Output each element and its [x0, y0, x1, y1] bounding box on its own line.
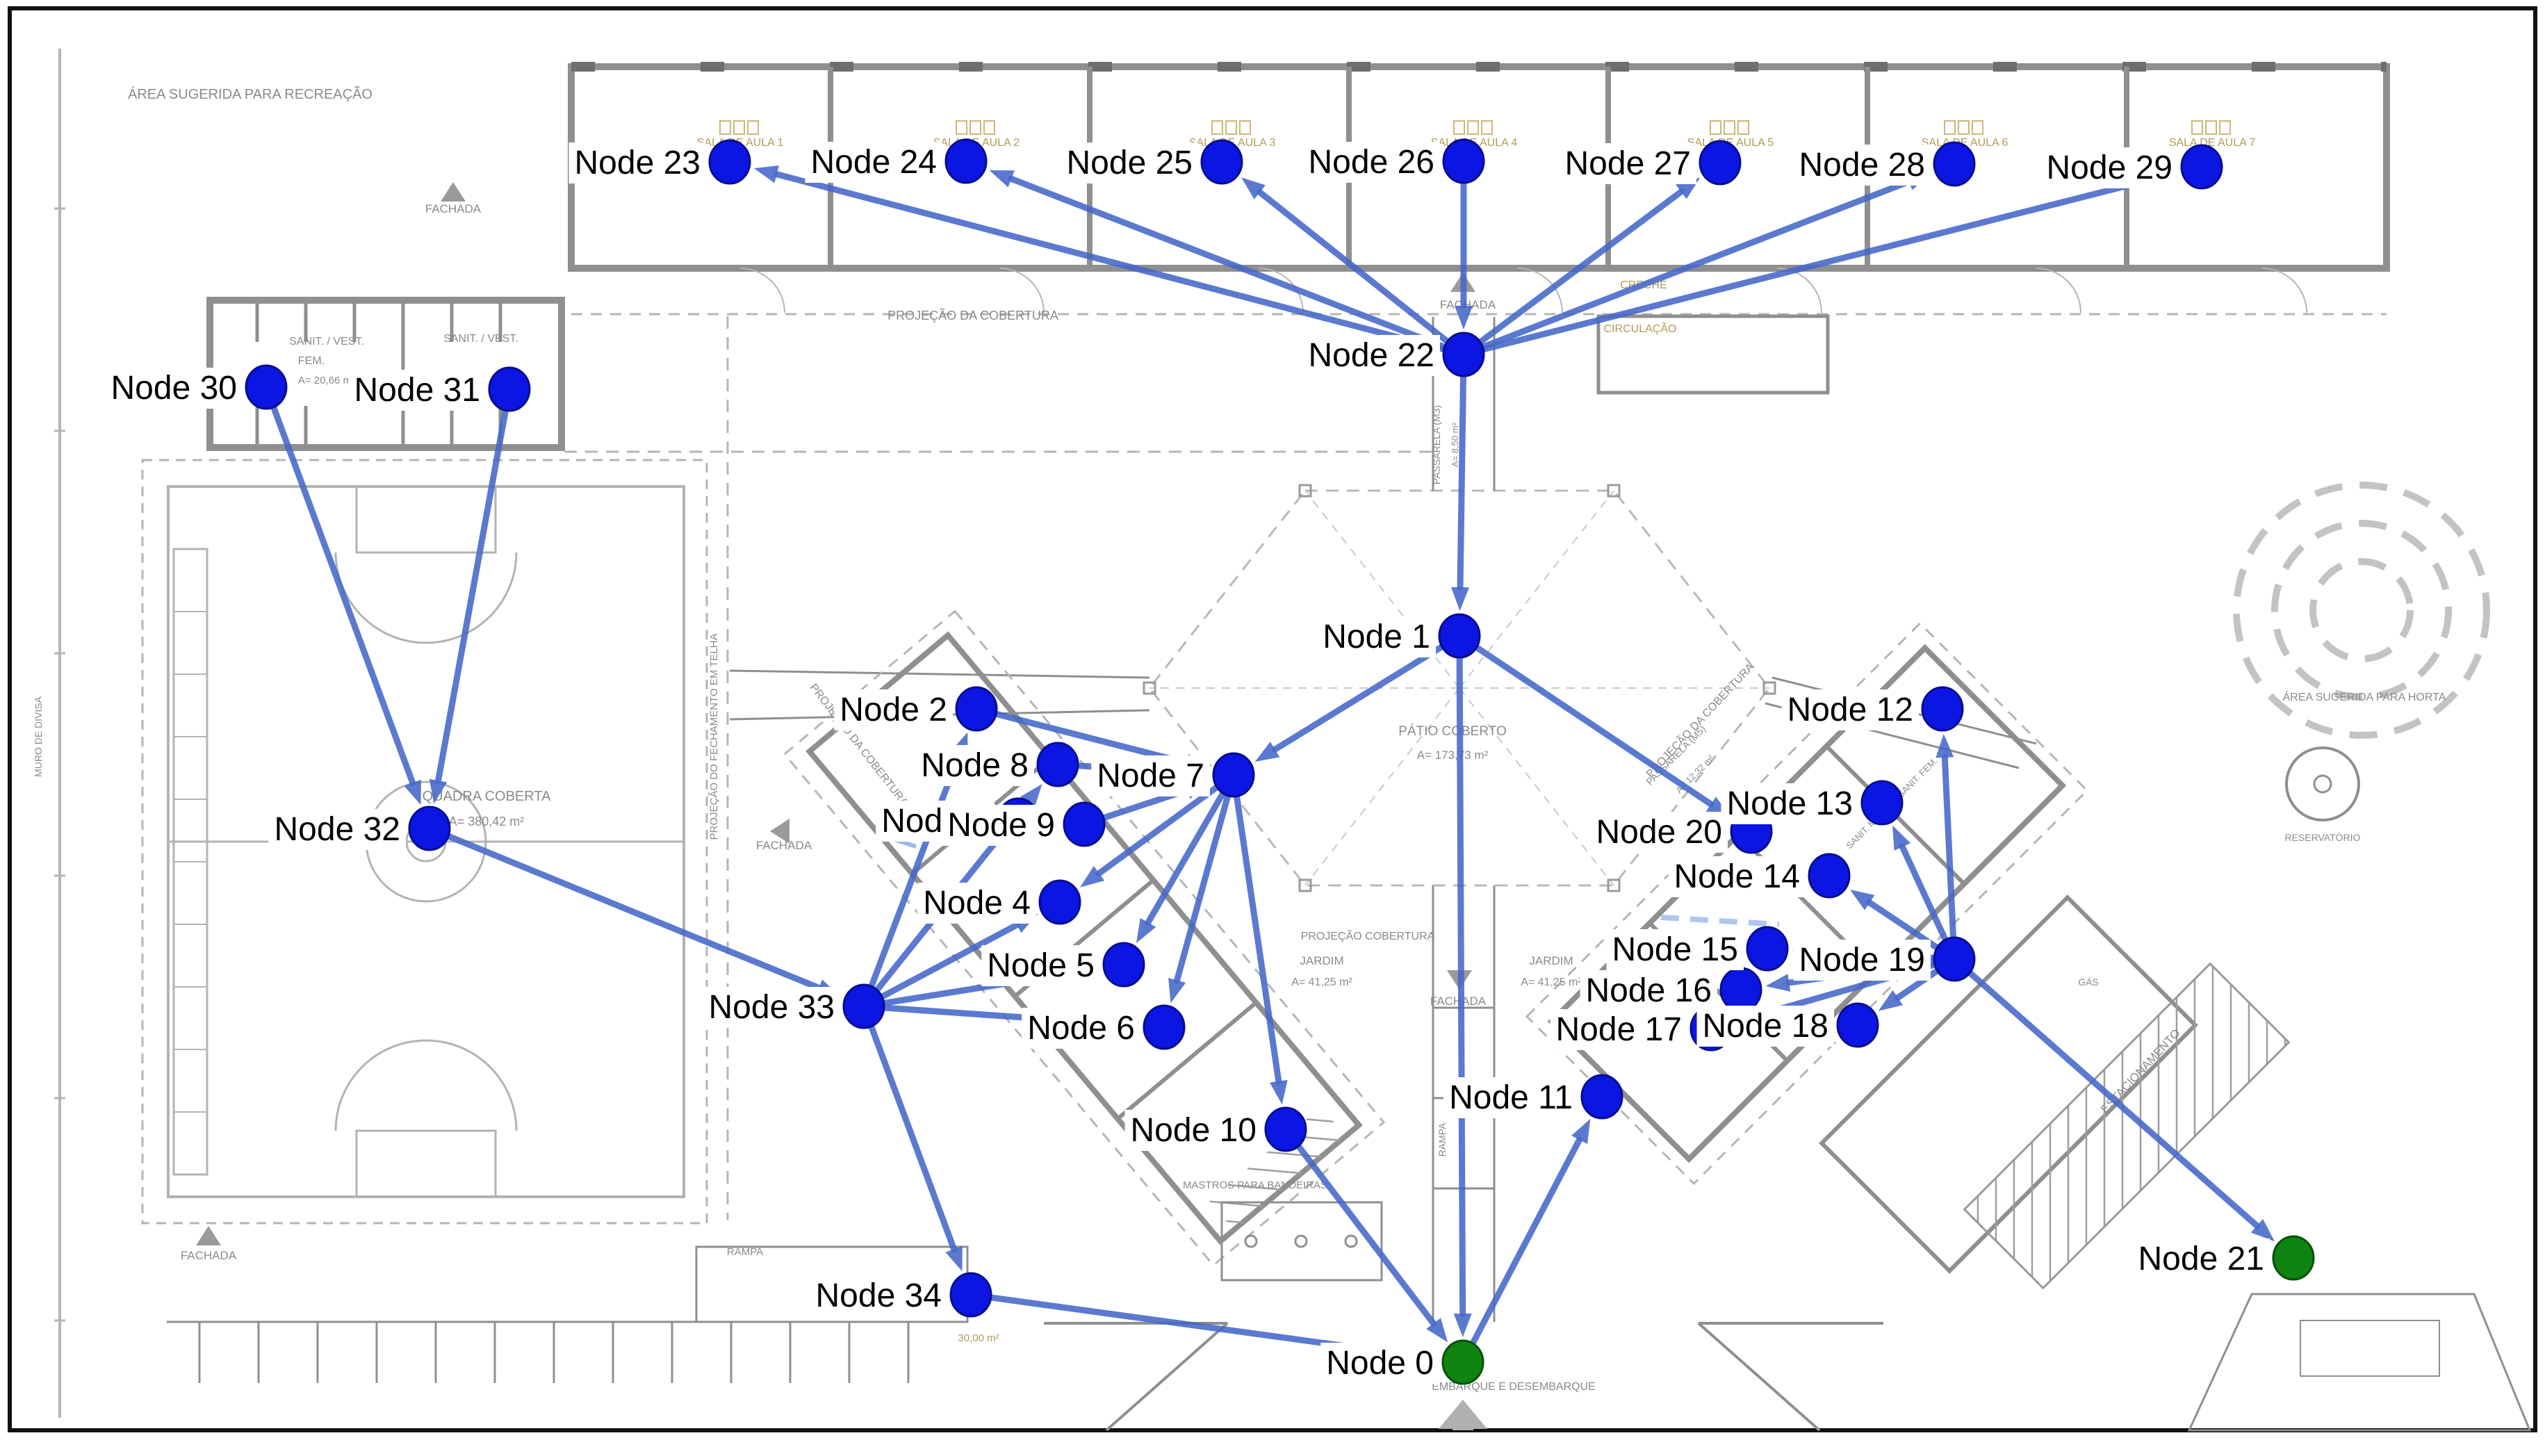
plan-text-32: MURO DE DIVISA [33, 696, 44, 777]
node-marker-18 [1838, 1004, 1878, 1047]
edge-arrow-22-23 [754, 165, 779, 183]
node-marker-14 [1809, 854, 1849, 897]
sala-icon-1-2 [984, 121, 995, 134]
node-label-18: Node 18 [1697, 1006, 1834, 1047]
node-label-text-1: Node 1 [1323, 619, 1430, 655]
sala-icon-0-1 [734, 121, 744, 134]
flagpole-2 [1295, 1236, 1307, 1247]
node-label-text-2: Node 2 [840, 692, 947, 728]
court-key-bottom [357, 1131, 496, 1197]
node-label-19: Node 19 [1794, 940, 1931, 981]
edge-7-10 [1234, 775, 1279, 1081]
plan-text-21: FACHADA [425, 202, 482, 215]
node-label-text-19: Node 19 [1799, 942, 1925, 979]
plan-text-38: SANIT. FEM. [1895, 755, 1940, 800]
node-label-2: Node 2 [834, 689, 953, 730]
figure-canvas: ÁREA SUGERIDA PARA RECREAÇÃOPROJEÇÃO DA … [0, 0, 2545, 1456]
node-label-text-20: Node 20 [1596, 814, 1722, 851]
door-arc-1 [999, 268, 1044, 313]
node-label-text-23: Node 23 [575, 145, 701, 181]
node-label-text-28: Node 28 [1799, 147, 1925, 183]
node-label-text-18: Node 18 [1703, 1008, 1828, 1045]
plan-text-25: ÁREA SUGERIDA PARA HORTA [2283, 690, 2446, 703]
node-label-12: Node 12 [1782, 689, 1919, 730]
node-marker-34 [951, 1273, 991, 1316]
door-arc-0 [740, 268, 785, 313]
node-label-text-4: Node 4 [923, 885, 1031, 922]
edge-33-34 [864, 1006, 954, 1249]
edge-22-1 [1460, 354, 1464, 587]
court-key-top [357, 486, 496, 553]
node-label-10: Node 10 [1125, 1110, 1262, 1151]
node-label-30: Node 30 [106, 368, 243, 409]
node-label-16: Node 16 [1580, 970, 1717, 1011]
edge-22-23 [777, 174, 1464, 354]
hex-spoke-3 [1459, 688, 1614, 885]
parking-ticks [199, 1322, 908, 1383]
node-label-text-6: Node 6 [1027, 1010, 1135, 1047]
edge-arrow-33-34 [945, 1246, 962, 1271]
node-label-34: Node 34 [810, 1275, 947, 1316]
plan-text-34: A= 8,50 m² [1450, 422, 1460, 467]
node-label-8: Node 8 [915, 745, 1034, 786]
node-label-17: Node 17 [1550, 1009, 1687, 1050]
edge-7-6 [1177, 775, 1234, 981]
sala-icon-6-0 [2192, 121, 2202, 134]
node-label-text-10: Node 10 [1131, 1112, 1257, 1149]
node-label-1: Node 1 [1317, 616, 1436, 657]
node-marker-21 [2273, 1236, 2314, 1279]
node-label-text-12: Node 12 [1787, 692, 1913, 728]
edge-arrow-30-32 [404, 780, 421, 805]
edge-arrow-7-10 [1270, 1080, 1288, 1105]
node-marker-27 [1700, 141, 1740, 184]
node-label-4: Node 4 [917, 883, 1036, 924]
node-label-24: Node 24 [805, 142, 942, 183]
node-label-29: Node 29 [2041, 147, 2178, 188]
sala-icon-3-1 [1468, 121, 1478, 134]
node-label-22: Node 22 [1303, 335, 1440, 376]
node-label-text-33: Node 33 [709, 989, 835, 1026]
hex-spoke-0 [1305, 491, 1459, 688]
node-label-14: Node 14 [1669, 856, 1806, 897]
node-label-text-9: Node 9 [947, 807, 1055, 844]
plan-text-0: ÁREA SUGERIDA PARA RECREAÇÃO [128, 85, 373, 102]
node-label-text-21: Node 21 [2138, 1241, 2264, 1277]
node-label-text-26: Node 26 [1309, 144, 1434, 181]
node-marker-25 [1202, 140, 1242, 183]
plan-text-11: A= 41,25 m² [1291, 976, 1352, 988]
node-marker-12 [1922, 687, 1963, 730]
sala-icon-5-1 [1958, 121, 1969, 134]
plan-text-35: RAMPA [1437, 1122, 1448, 1156]
plan-text-40: GÁS [2078, 976, 2099, 988]
plan-text-23: CIRCULAÇÃO [1604, 321, 1677, 335]
node-label-0: Node 0 [1320, 1343, 1439, 1384]
node-label-6: Node 6 [1022, 1008, 1140, 1049]
plan-text-16: A= 20,66 m² [298, 375, 355, 386]
fachada-arrow-topleft [441, 182, 466, 202]
edge-arrow-22-24 [990, 170, 1015, 187]
node-marker-0 [1443, 1341, 1483, 1384]
node-label-text-30: Node 30 [111, 370, 237, 407]
node-marker-13 [1862, 781, 1902, 824]
node-marker-24 [946, 140, 986, 183]
node-marker-32 [409, 807, 450, 850]
node-marker-15 [1747, 927, 1787, 970]
node-marker-6 [1144, 1006, 1184, 1049]
node-label-28: Node 28 [1794, 145, 1931, 186]
node-label-text-31: Node 31 [354, 372, 480, 409]
sala-icon-4-0 [1710, 121, 1721, 134]
embarque-arrow [1439, 1400, 1487, 1430]
edge-arrow-19-12 [1936, 734, 1954, 758]
node-marker-26 [1443, 140, 1484, 183]
flagpole-1 [1245, 1236, 1257, 1247]
sala-icon-3-2 [1482, 121, 1492, 134]
sala-icon-2-0 [1212, 121, 1222, 134]
edge-arrow-7-5 [1136, 918, 1156, 943]
node-label-13: Node 13 [1721, 783, 1858, 824]
node-label-text-27: Node 27 [1565, 145, 1691, 182]
sala-icon-6-2 [2220, 121, 2230, 134]
node-label-text-34: Node 34 [816, 1277, 942, 1314]
node-label-5: Node 5 [981, 945, 1100, 986]
edge-arrow-22-1 [1451, 587, 1469, 611]
node-label-33: Node 33 [703, 987, 840, 1028]
node-label-text-17: Node 17 [1556, 1011, 1682, 1048]
edge-arrow-0-11 [1571, 1119, 1590, 1144]
node-marker-16 [1721, 968, 1761, 1011]
node-label-text-29: Node 29 [2047, 149, 2172, 186]
edge-arrow-26-22 [1455, 306, 1473, 329]
plan-text-15: FEM. [298, 355, 325, 367]
sala-icon-6-1 [2206, 121, 2216, 134]
edge-arrow-19-16 [1766, 974, 1791, 992]
node-label-20: Node 20 [1591, 812, 1728, 853]
node-label-text-15: Node 15 [1612, 931, 1738, 968]
blueprint-blue-mark-right [1661, 917, 1779, 924]
edge-arrow-7-6 [1168, 978, 1186, 1003]
node-label-23: Node 23 [569, 142, 706, 183]
plan-text-1: PROJEÇÃO DA COBERTURA [887, 308, 1058, 322]
plan-text-8: PÁTIO COBERTO [1398, 724, 1507, 739]
node-marker-23 [710, 140, 750, 183]
plan-text-22: FACHADA [181, 1249, 237, 1262]
classroom-tag-icons [720, 121, 2230, 134]
reservoir-circle-inner [2314, 776, 2331, 792]
node-label-9: Node 9 [942, 805, 1061, 846]
node-marker-22 [1443, 333, 1484, 376]
node-label-text-7: Node 7 [1097, 758, 1204, 794]
plan-text-12: JARDIM [1529, 954, 1573, 967]
node-label-26: Node 26 [1303, 142, 1440, 183]
plan-text-33: PASSARELA (M3) [1431, 405, 1442, 484]
plan-text-37: A= 12,32 m² [1674, 753, 1716, 795]
node-label-text-8: Node 8 [921, 747, 1029, 784]
bottom-right-structure [2189, 1294, 2530, 1430]
node-label-text-32: Node 32 [275, 811, 400, 848]
node-label-text-24: Node 24 [811, 144, 937, 181]
sala-icon-3-0 [1454, 121, 1464, 134]
plan-text-13: A= 41,25 m² [1521, 976, 1582, 988]
hex-spoke-1 [1459, 491, 1614, 688]
node-label-text-16: Node 16 [1586, 972, 1712, 1009]
node-marker-11 [1582, 1075, 1622, 1118]
node-label-text-13: Node 13 [1727, 785, 1853, 822]
plan-text-14: SANIT. / VEST. [289, 336, 364, 347]
court-arc-top [336, 553, 516, 643]
sala-icon-2-2 [1240, 121, 1250, 134]
plan-text-27: MASTROS PARA BANDEIRAS [1183, 1179, 1327, 1191]
plan-text-26: RESERVATÓRIO [2285, 832, 2361, 843]
plan-text-30: 30,00 m² [958, 1332, 999, 1344]
node-label-text-5: Node 5 [987, 947, 1095, 984]
node-label-text-0: Node 0 [1326, 1345, 1434, 1382]
node-label-25: Node 25 [1061, 142, 1198, 183]
reservoir-circle [2286, 748, 2359, 820]
sala-icon-5-0 [1945, 121, 1955, 134]
sala-icon-1-1 [970, 121, 981, 134]
node-marker-19 [1934, 938, 1974, 981]
plan-text-20: FACHADA [756, 839, 812, 852]
node-label-27: Node 27 [1560, 143, 1696, 184]
plan-text-4: PROJEÇÃO COBERTURA [1301, 929, 1435, 942]
node-marker-7 [1213, 753, 1254, 796]
node-marker-30 [246, 366, 286, 409]
network-floorplan-figure: ÁREA SUGERIDA PARA RECREAÇÃOPROJEÇÃO DA … [0, 0, 2545, 1456]
node-marker-29 [2182, 145, 2222, 188]
node-marker-1 [1439, 614, 1480, 657]
node-marker-28 [1934, 142, 1974, 186]
node-label-15: Node 15 [1607, 929, 1744, 970]
node-marker-33 [844, 985, 884, 1028]
node-label-text-25: Node 25 [1067, 145, 1193, 181]
node-label-32: Node 32 [269, 809, 406, 850]
node-label-21: Node 21 [2133, 1238, 2270, 1279]
sala-icon-0-0 [720, 121, 730, 134]
sala-icon-0-2 [748, 121, 758, 134]
node-label-text-14: Node 14 [1674, 858, 1800, 895]
sala-icon-1-0 [956, 121, 967, 134]
edge-32-33 [429, 828, 819, 988]
edge-33-2 [864, 754, 959, 1006]
plan-text-29: RAMPA [727, 1246, 763, 1258]
plan-text-10: JARDIM [1300, 954, 1343, 967]
edge-arrow-1-7 [1255, 742, 1280, 762]
sala-icon-4-2 [1738, 121, 1749, 134]
node-marker-2 [956, 687, 997, 730]
plan-text-5: PROJEÇÃO DO FECHAMENTO EM TELHA [708, 634, 720, 840]
fachada-arrow-bottomleft [196, 1226, 221, 1245]
node-marker-8 [1038, 743, 1078, 786]
plan-text-7: A= 380,42 m² [449, 815, 525, 828]
node-marker-31 [489, 368, 530, 411]
edge-10-0 [1286, 1129, 1434, 1323]
door-arc-6 [2262, 268, 2307, 313]
edge-0-11 [1463, 1140, 1580, 1362]
edge-1-0 [1459, 636, 1463, 1314]
court-arc-bottom [336, 1040, 516, 1131]
node-label-text-22: Node 22 [1309, 337, 1434, 374]
bleacher-rows [174, 612, 207, 1112]
sala-icon-2-1 [1226, 121, 1236, 134]
edge-19-12 [1945, 758, 1954, 959]
sala-icon-4-1 [1724, 121, 1735, 134]
node-marker-10 [1266, 1108, 1306, 1151]
flagpole-3 [1345, 1236, 1357, 1247]
bottom-right-inner [2300, 1320, 2439, 1376]
sala-icon-5-2 [1972, 121, 1983, 134]
node-label-text-11: Node 11 [1449, 1079, 1573, 1116]
node-marker-5 [1104, 943, 1144, 986]
edge-arrow-1-0 [1454, 1314, 1472, 1337]
node-label-31: Node 31 [349, 370, 486, 411]
node-marker-4 [1040, 881, 1080, 924]
edge-1-20 [1459, 636, 1711, 804]
plan-text-17: SANIT. / VEST. [443, 333, 518, 345]
plan-text-9: A= 173,73 m² [1417, 749, 1489, 762]
plan-text-47: SALA DE AULA 7 [2169, 137, 2256, 149]
node-label-11: Node 11 [1443, 1077, 1578, 1118]
node-marker-9 [1064, 803, 1104, 846]
node-label-7: Node 7 [1091, 755, 1210, 796]
door-arc-5 [2036, 268, 2081, 313]
